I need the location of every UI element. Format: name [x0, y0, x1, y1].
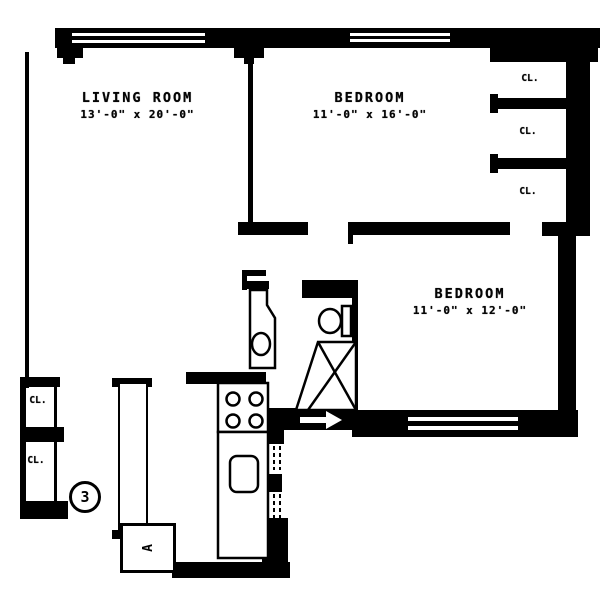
- water-closet-outline: [250, 290, 275, 368]
- closet-label: CL.: [498, 126, 558, 137]
- appliance-box: A: [120, 523, 176, 573]
- living-room-label: LIVING ROOM: [55, 90, 220, 106]
- water-closet-bowl-icon: [252, 333, 270, 355]
- floor-plan: LIVING ROOM 13'-0" x 20'-0" BEDROOM 11'-…: [0, 0, 602, 600]
- closet-label: CL.: [22, 455, 50, 466]
- closet-label: CL.: [498, 186, 558, 197]
- kitchen-sink: [230, 456, 258, 492]
- bedroom1-label: BEDROOM: [295, 90, 445, 106]
- bedroom2-dimensions: 11'-0" x 12'-0": [400, 304, 540, 317]
- living-room-dimensions: 13'-0" x 20'-0": [55, 108, 220, 121]
- bedroom2-label: BEDROOM: [400, 286, 540, 302]
- toilet-bowl-icon: [319, 309, 341, 333]
- bedroom1-dimensions: 11'-0" x 16'-0": [295, 108, 445, 121]
- unit-number-badge: 3: [69, 481, 101, 513]
- entry-arrow-icon: [300, 417, 326, 423]
- closet-label: CL.: [24, 395, 52, 406]
- fixture-tank-cap: [247, 281, 269, 289]
- kitchen-counter-outline: [218, 432, 268, 558]
- toilet-tank-icon: [342, 306, 351, 336]
- closet-label: CL.: [500, 73, 560, 84]
- entry-arrow-icon: [326, 411, 342, 429]
- appliance-label: A: [126, 523, 170, 573]
- bathtub-outline: [296, 342, 356, 410]
